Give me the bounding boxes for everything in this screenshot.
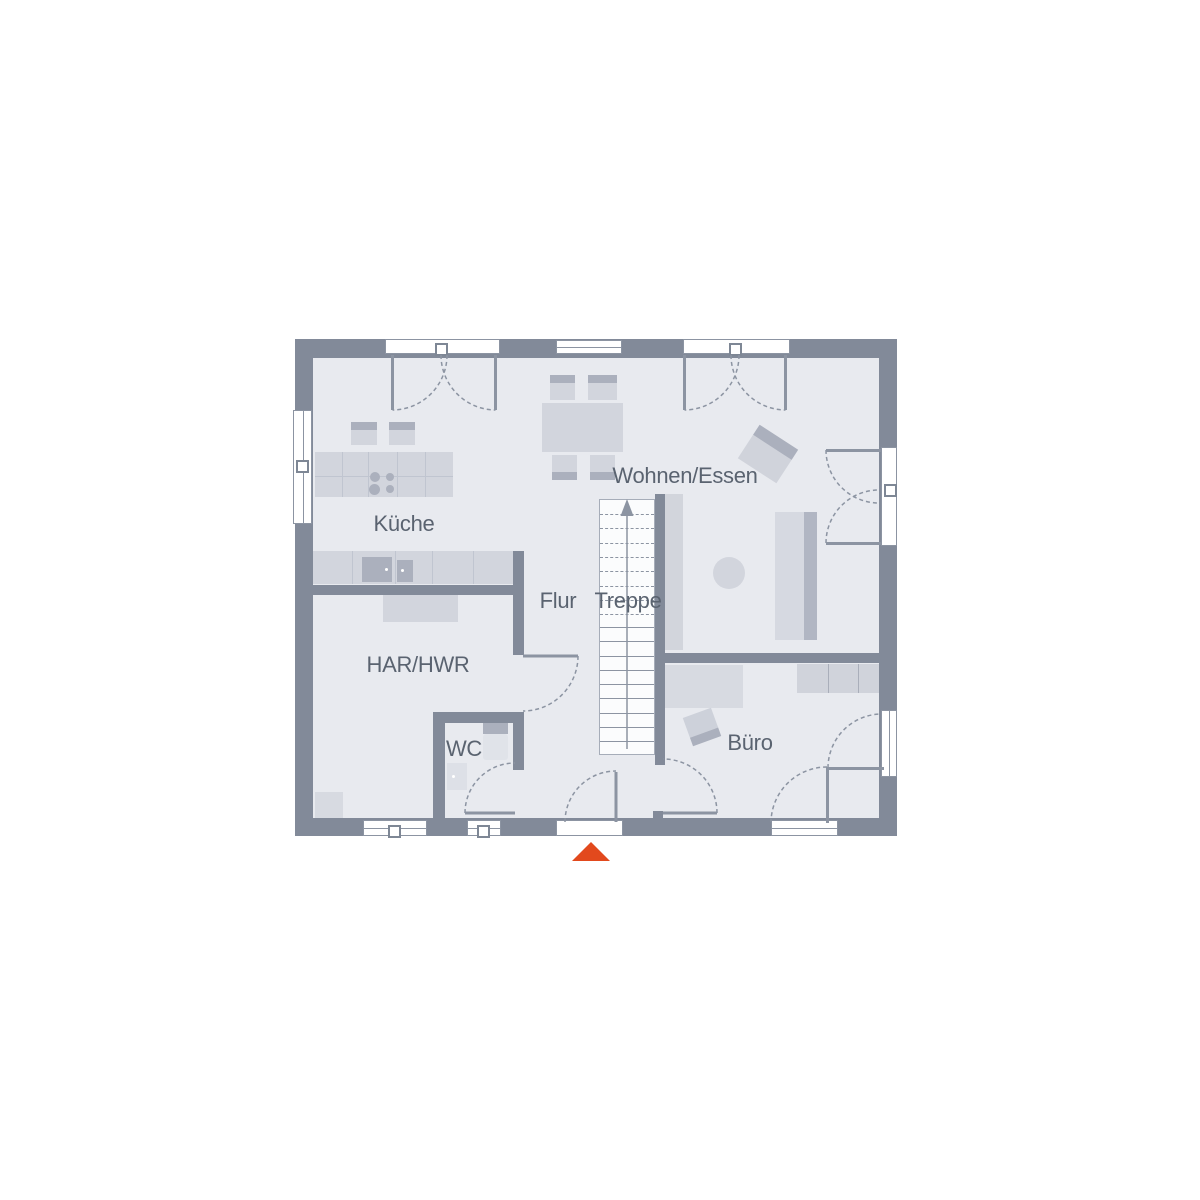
counter-divider	[473, 551, 474, 584]
laundry-shelf	[383, 595, 458, 622]
bar-stool	[351, 422, 377, 445]
stair-tread	[600, 557, 654, 558]
room-label-har-hwr: HAR/HWR	[366, 652, 469, 678]
stair-tread	[600, 586, 654, 587]
dining-chair	[550, 375, 575, 400]
inner-wall	[513, 712, 524, 770]
storage-box	[315, 792, 343, 820]
counter-divider	[342, 452, 343, 497]
round-rug	[713, 557, 745, 589]
inner-wall	[513, 551, 524, 655]
stair-tread	[600, 713, 654, 714]
kitchen-island	[315, 452, 453, 497]
toilet-icon	[483, 723, 508, 760]
stairs	[599, 499, 655, 755]
window-handle-icon	[477, 825, 490, 838]
inner-wall	[313, 585, 524, 595]
room-label-kueche: Küche	[374, 511, 435, 537]
stair-tread	[600, 684, 654, 685]
stair-tread	[600, 741, 654, 742]
stair-tread	[600, 698, 654, 699]
room-label-treppe: Treppe	[594, 588, 661, 614]
office-desk	[662, 665, 743, 708]
stair-tread	[600, 614, 654, 615]
window-bottom-office	[771, 820, 838, 836]
washbasin-icon	[447, 763, 467, 790]
stair-tread	[600, 641, 654, 642]
kitchen-counter	[313, 551, 513, 584]
cooktop-burner-icon	[386, 473, 394, 481]
stair-tread	[600, 656, 654, 657]
wall-stub	[653, 811, 663, 818]
floor-plan-page: Küche Wohnen/Essen Flur Treppe HAR/HWR W…	[0, 0, 1200, 1200]
dining-table	[542, 403, 623, 452]
stair-tread	[600, 627, 654, 628]
door-handle-icon	[884, 484, 897, 497]
counter-divider	[315, 476, 453, 477]
cooktop-burner-icon	[370, 472, 380, 482]
dining-chair	[590, 455, 615, 480]
window-right-office	[881, 710, 897, 777]
stair-tread	[600, 727, 654, 728]
counter-divider	[397, 452, 398, 497]
bar-stool	[389, 422, 415, 445]
washing-machine-icon	[362, 557, 392, 582]
room-label-wc: WC	[446, 736, 482, 762]
window-handle-icon	[388, 825, 401, 838]
inner-wall	[663, 653, 879, 663]
cooktop-burner-icon	[386, 485, 394, 493]
door-handle-icon	[729, 343, 742, 356]
room-label-flur: Flur	[540, 588, 577, 614]
stair-tread	[600, 514, 654, 515]
appliance-icon	[397, 560, 413, 582]
entrance-marker-icon	[572, 842, 610, 861]
door-handle-icon	[435, 343, 448, 356]
counter-divider	[432, 551, 433, 584]
tv-board	[665, 494, 683, 650]
cooktop-burner-icon	[369, 484, 380, 495]
stair-tread	[600, 528, 654, 529]
counter-divider	[425, 452, 426, 497]
office-shelf	[797, 664, 879, 693]
counter-divider	[352, 551, 353, 584]
stair-tread	[600, 571, 654, 572]
inner-wall	[433, 712, 445, 818]
room-label-buero: Büro	[727, 730, 772, 756]
counter-divider	[395, 551, 396, 584]
window-handle-icon	[296, 460, 309, 473]
room-label-wohnen-essen: Wohnen/Essen	[612, 463, 757, 489]
window-top-center	[556, 340, 622, 354]
stair-tread	[600, 670, 654, 671]
stair-tread	[600, 543, 654, 544]
floor-plan: Küche Wohnen/Essen Flur Treppe HAR/HWR W…	[295, 339, 897, 836]
stair-wall	[655, 494, 665, 765]
inner-wall	[433, 712, 524, 723]
sofa	[775, 512, 817, 640]
dining-chair	[588, 375, 617, 400]
dining-chair	[552, 455, 577, 480]
entrance-door	[556, 820, 623, 836]
